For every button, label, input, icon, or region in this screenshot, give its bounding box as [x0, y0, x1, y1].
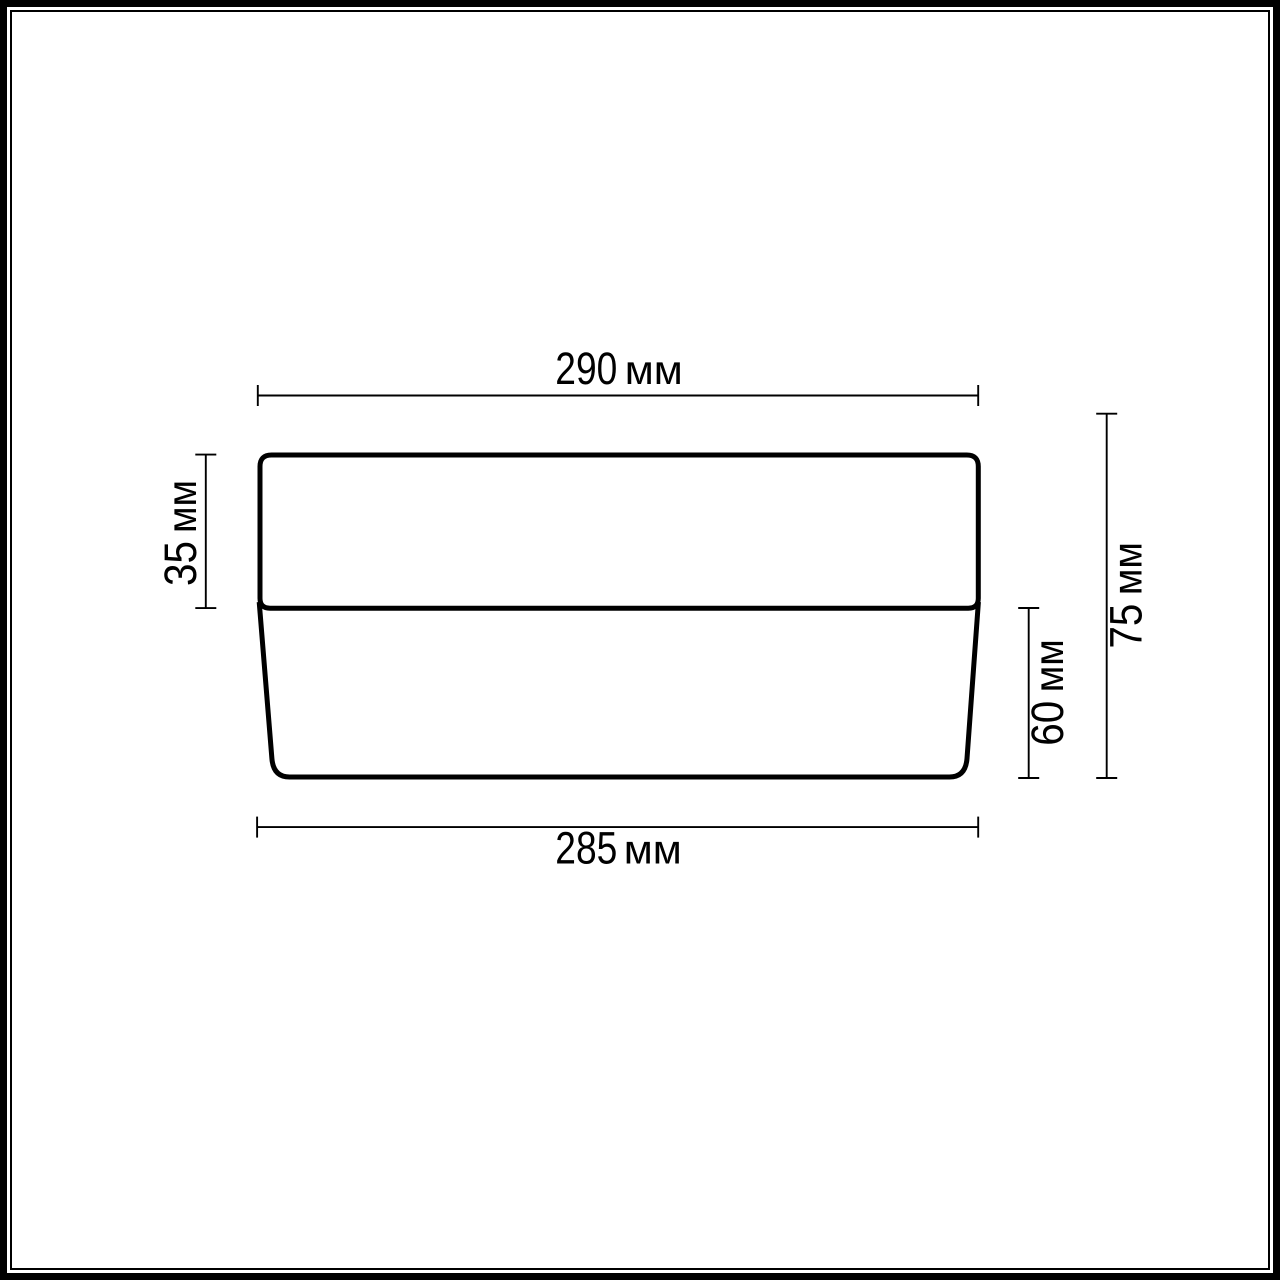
- svg-text:мм: мм: [624, 826, 682, 872]
- svg-text:мм: мм: [1105, 542, 1151, 595]
- svg-text:мм: мм: [159, 480, 205, 533]
- svg-text:290: 290: [555, 343, 617, 394]
- svg-text:75: 75: [1101, 604, 1152, 649]
- svg-text:мм: мм: [1026, 639, 1072, 692]
- svg-text:60: 60: [1022, 701, 1073, 746]
- svg-text:285: 285: [555, 822, 617, 873]
- svg-text:мм: мм: [625, 347, 683, 393]
- svg-text:35: 35: [155, 541, 206, 586]
